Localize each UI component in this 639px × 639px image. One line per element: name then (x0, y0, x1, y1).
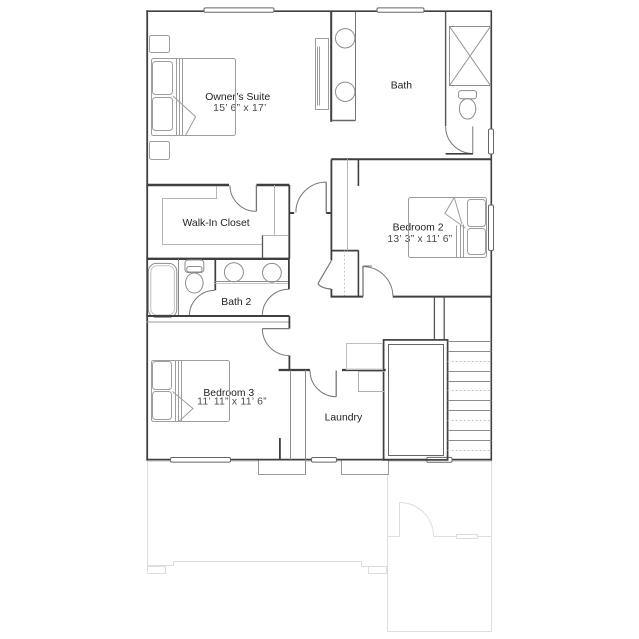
svg-text:Bath: Bath (391, 81, 413, 92)
svg-text:15’ 6” x 17’: 15’ 6” x 17’ (213, 103, 266, 114)
svg-text:Laundry: Laundry (325, 412, 363, 423)
svg-text:Bedroom 2: Bedroom 2 (393, 223, 444, 234)
svg-text:11’ 11” x 11’ 6”: 11’ 11” x 11’ 6” (197, 397, 267, 408)
svg-text:Owner’s Suite: Owner’s Suite (205, 92, 270, 103)
svg-text:Walk-In Closet: Walk-In Closet (183, 218, 250, 229)
svg-text:13’ 3” x 11’ 6”: 13’ 3” x 11’ 6” (387, 234, 452, 245)
svg-text:Bath 2: Bath 2 (221, 297, 251, 308)
